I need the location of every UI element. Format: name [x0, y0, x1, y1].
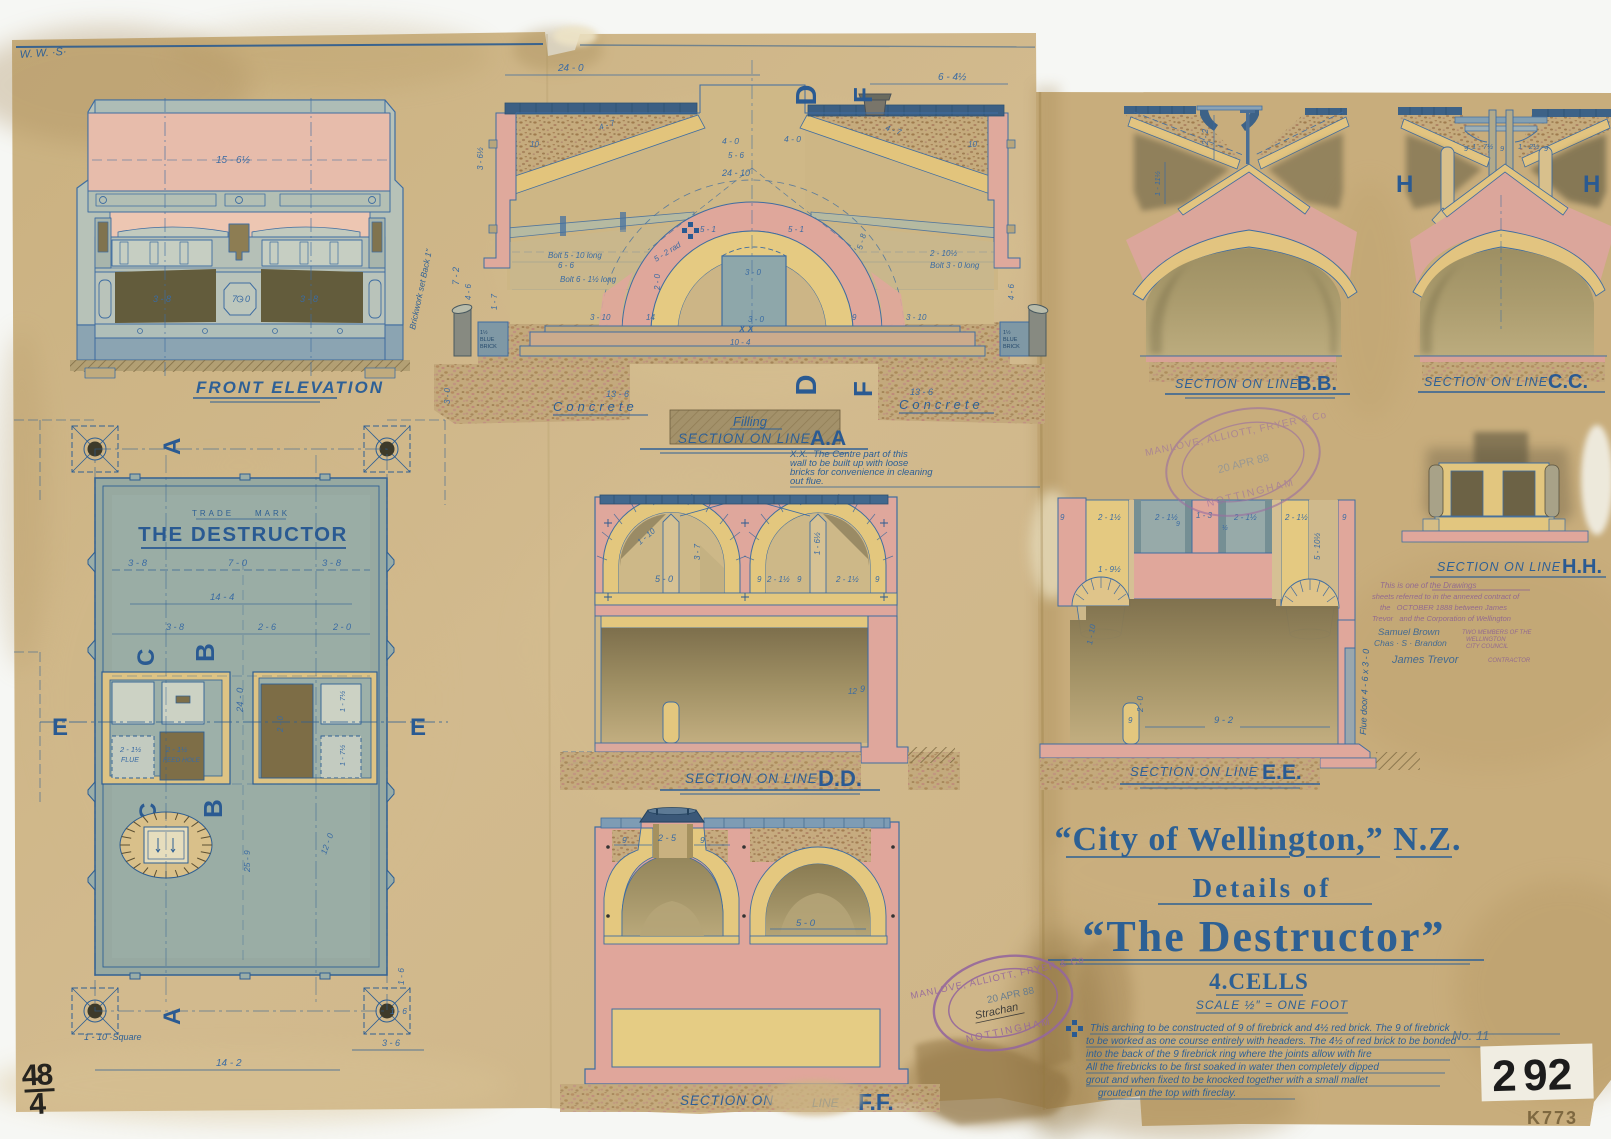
- svg-text:9: 9: [757, 575, 762, 584]
- svg-text:1½: 1½: [1003, 329, 1011, 336]
- svg-text:SECTION ON LINE: SECTION ON LINE: [1437, 560, 1561, 574]
- svg-text:1 - 2½: 1 - 2½: [1518, 142, 1540, 151]
- svg-text:CITY COUNCIL: CITY COUNCIL: [1466, 644, 1508, 650]
- svg-text:2 - 2: 2 - 2: [1201, 128, 1210, 146]
- svg-text:“The Destructor”: “The Destructor”: [1082, 912, 1445, 961]
- svg-text:4 - 0: 4 - 0: [784, 134, 801, 144]
- svg-text:H: H: [1396, 171, 1413, 198]
- svg-text:Bolt 5 - 10 long: Bolt 5 - 10 long: [548, 251, 602, 260]
- svg-text:9: 9: [622, 835, 627, 845]
- svg-text:H: H: [1583, 171, 1600, 198]
- svg-text:5 - 1: 5 - 1: [788, 225, 804, 234]
- svg-text:TRADE MARK: TRADE MARK: [192, 509, 290, 518]
- svg-text:9: 9: [1176, 521, 1180, 528]
- svg-text:4 - 6: 4 - 6: [464, 283, 473, 300]
- svg-text:9 - 2: 9 - 2: [1214, 715, 1234, 726]
- svg-text:grout and when fixed to be kno: grout and when fixed to be knocked toget…: [1086, 1075, 1369, 1086]
- svg-text:2 - 0: 2 - 0: [1136, 695, 1145, 713]
- svg-text:2 - 1½: 2 - 1½: [766, 575, 790, 584]
- svg-text:Samuel Brown: Samuel Brown: [1378, 627, 1440, 638]
- svg-text:BLUE: BLUE: [480, 337, 495, 343]
- svg-text:1 - 6½: 1 - 6½: [813, 532, 822, 555]
- svg-text:2: 2: [1491, 1052, 1517, 1102]
- svg-text:3 - 8: 3 - 8: [153, 294, 171, 304]
- svg-text:3 - 6½: 3 - 6½: [476, 147, 485, 170]
- svg-text:Chas · S · Brandon: Chas · S · Brandon: [1374, 638, 1447, 648]
- svg-text:H.H.: H.H.: [1562, 556, 1602, 578]
- svg-text:10: 10: [968, 140, 977, 149]
- svg-text:12: 12: [848, 687, 857, 696]
- svg-text:9: 9: [852, 313, 857, 322]
- svg-text:10 - 4: 10 - 4: [730, 338, 751, 347]
- svg-text:1 - 7½: 1 - 7½: [1472, 142, 1494, 151]
- svg-text:3 - 8: 3 - 8: [300, 294, 318, 304]
- svg-text:BLUE: BLUE: [1003, 337, 1018, 343]
- svg-text:SECTION ON LINE: SECTION ON LINE: [1130, 764, 1258, 779]
- svg-text:Details of: Details of: [1193, 873, 1332, 903]
- svg-text:2 - 1½: 2 - 1½: [1154, 513, 1178, 522]
- svg-text:sheets referred to in the anne: sheets referred to in the annexed contra…: [1372, 592, 1520, 601]
- svg-text:1 - 9½: 1 - 9½: [1098, 565, 1121, 574]
- svg-text:Concrete: Concrete: [899, 397, 984, 412]
- svg-text:6 - 6: 6 - 6: [558, 261, 575, 270]
- svg-text:SECTION ON LINE: SECTION ON LINE: [685, 771, 818, 786]
- svg-text:2 - 0: 2 - 0: [276, 715, 285, 733]
- svg-text:1 - 11½: 1 - 11½: [1153, 170, 1162, 196]
- svg-text:2 - 1½: 2 - 1½: [119, 745, 142, 754]
- svg-text:grouted on the top with firecl: grouted on the top with fireclay.: [1098, 1088, 1236, 1099]
- svg-text:13 - 6: 13 - 6: [910, 387, 933, 397]
- svg-text:2 - 5: 2 - 5: [657, 833, 677, 843]
- svg-text:3 - 0: 3 - 0: [745, 268, 762, 277]
- svg-text:1 - 7½: 1 - 7½: [338, 690, 347, 712]
- svg-text:9: 9: [875, 575, 880, 584]
- svg-text:7 - 2: 7 - 2: [451, 267, 461, 285]
- svg-text:B.B.: B.B.: [1297, 373, 1337, 395]
- svg-text:Bolt 6 - 1½ long: Bolt 6 - 1½ long: [560, 275, 617, 284]
- svg-text:SECTION ON LINE: SECTION ON LINE: [678, 431, 811, 446]
- svg-text:CONTRACTOR: CONTRACTOR: [1488, 658, 1531, 664]
- svg-text:4: 4: [28, 1088, 47, 1122]
- svg-text:FRONT ELEVATION: FRONT ELEVATION: [196, 378, 384, 397]
- svg-text:FEED HOLE: FEED HOLE: [163, 757, 201, 764]
- svg-text:SECTION ON LINE: SECTION ON LINE: [1175, 377, 1299, 391]
- svg-text:F: F: [848, 87, 878, 103]
- svg-text:3 - 6: 3 - 6: [382, 1038, 400, 1048]
- svg-text:3 - 10: 3 - 10: [590, 313, 611, 322]
- svg-text:5 - 1: 5 - 1: [700, 225, 716, 234]
- svg-text:½: ½: [1222, 524, 1228, 532]
- svg-text:All the firebricks to be first: All the firebricks to be first soaked in…: [1085, 1062, 1379, 1073]
- svg-text:D: D: [791, 85, 823, 106]
- svg-text:5 - 0: 5 - 0: [796, 918, 816, 929]
- svg-text:1 - 10 ·Square: 1 - 10 ·Square: [84, 1032, 142, 1042]
- svg-text:2 - 1½: 2 - 1½: [1284, 513, 1308, 522]
- svg-text:4 - 6: 4 - 6: [1007, 283, 1016, 300]
- svg-text:2 - 1½: 2 - 1½: [835, 575, 859, 584]
- svg-text:out flue.: out flue.: [790, 476, 824, 487]
- svg-text:24 - 0: 24 - 0: [235, 687, 246, 713]
- svg-text:5 - 6: 5 - 6: [728, 151, 745, 160]
- svg-text:6 - 4½: 6 - 4½: [938, 72, 967, 83]
- svg-text:Filling: Filling: [733, 414, 768, 429]
- svg-text:4 - 0: 4 - 0: [722, 136, 739, 146]
- svg-text:24 - 0: 24 - 0: [557, 63, 584, 74]
- svg-text:BRICK: BRICK: [1003, 344, 1020, 350]
- svg-text:Bolt 3 - 0 long: Bolt 3 - 0 long: [930, 261, 980, 270]
- svg-text:9: 9: [797, 575, 802, 584]
- svg-text:to be worked as one course ent: to be worked as one course entirely with…: [1086, 1036, 1457, 1047]
- svg-text:92: 92: [1522, 1050, 1572, 1100]
- svg-text:3 - 0: 3 - 0: [443, 387, 452, 404]
- svg-text:14 - 4: 14 - 4: [210, 592, 234, 603]
- svg-text:2 - 0: 2 - 0: [332, 622, 351, 632]
- svg-text:3 - 7: 3 - 7: [693, 543, 702, 560]
- svg-text:Concrete: Concrete: [553, 399, 638, 414]
- svg-text:E.E.: E.E.: [1262, 761, 1302, 784]
- svg-text:1 - 6: 1 - 6: [390, 1006, 407, 1016]
- svg-text:K773: K773: [1527, 1108, 1578, 1128]
- svg-text:This is one of the Drawings: This is one of the Drawings: [1380, 581, 1477, 590]
- svg-text:3 - 8: 3 - 8: [128, 558, 148, 569]
- svg-text:B: B: [198, 799, 228, 818]
- svg-text:14 - 2: 14 - 2: [216, 1058, 242, 1069]
- svg-text:4.CELLS: 4.CELLS: [1209, 969, 1309, 994]
- svg-text:3 - 8: 3 - 8: [166, 622, 184, 632]
- svg-text:1½: 1½: [480, 329, 488, 336]
- svg-text:A.A: A.A: [810, 427, 846, 450]
- svg-text:3 - 0: 3 - 0: [748, 315, 765, 324]
- svg-text:1 - 6: 1 - 6: [396, 968, 406, 985]
- svg-text:3 - 8: 3 - 8: [322, 558, 342, 569]
- svg-text:C.C.: C.C.: [1548, 371, 1588, 393]
- svg-text:A: A: [159, 1008, 186, 1025]
- svg-text:This arching to be constructed: This arching to be constructed of 9 of f…: [1090, 1023, 1451, 1034]
- svg-text:BRICK: BRICK: [480, 344, 497, 350]
- svg-text:14: 14: [646, 313, 655, 322]
- svg-text:D.D.: D.D.: [818, 766, 862, 791]
- svg-text:25 - 9: 25 - 9: [242, 850, 252, 873]
- svg-text:F.F.: F.F.: [858, 1089, 894, 1115]
- svg-text:9: 9: [1060, 513, 1065, 522]
- svg-text:C: C: [133, 649, 160, 666]
- svg-text:9: 9: [1128, 716, 1133, 725]
- svg-text:24 - 10: 24 - 10: [721, 168, 750, 178]
- svg-text:the OCTOBER 1888 between Jam: the OCTOBER 1888 between James: [1380, 603, 1507, 612]
- svg-text:B: B: [190, 643, 220, 662]
- svg-text:1 - 7: 1 - 7: [490, 293, 499, 310]
- svg-text:A: A: [159, 438, 186, 455]
- svg-text:2 - 10½: 2 - 10½: [929, 249, 957, 258]
- svg-text:FLUE: FLUE: [121, 757, 139, 764]
- svg-text:SECTION ON LINE: SECTION ON LINE: [1424, 375, 1548, 389]
- svg-text:10: 10: [530, 140, 539, 149]
- svg-text:7 - 0: 7 - 0: [228, 558, 248, 569]
- svg-text:5 - 10½: 5 - 10½: [1313, 533, 1322, 560]
- svg-text:Trevor and the Corporation o: Trevor and the Corporation of Wellington: [1372, 614, 1511, 623]
- svg-text:13 - 6: 13 - 6: [606, 389, 629, 399]
- svg-text:SCALE ½″ = ONE FOOT: SCALE ½″ = ONE FOOT: [1196, 998, 1349, 1012]
- svg-text:5 - 0: 5 - 0: [655, 574, 673, 584]
- svg-text:2 - 1½: 2 - 1½: [1097, 513, 1121, 522]
- svg-text:D: D: [791, 375, 823, 396]
- svg-text:9: 9: [860, 684, 865, 694]
- svg-text:2 - 1½: 2 - 1½: [165, 745, 188, 754]
- svg-text:3 - 10: 3 - 10: [906, 313, 927, 322]
- svg-text:15 - 6½: 15 - 6½: [216, 155, 251, 166]
- svg-text:7 - 0: 7 - 0: [232, 294, 250, 304]
- svg-text:WELLINGTON: WELLINGTON: [1466, 637, 1506, 643]
- svg-text:E: E: [410, 714, 426, 741]
- svg-text:E: E: [52, 714, 68, 741]
- svg-text:No. 11: No. 11: [1452, 1028, 1489, 1043]
- svg-text:SECTION ON: SECTION ON: [680, 1093, 774, 1108]
- svg-text:2 - 0: 2 - 0: [653, 273, 662, 291]
- svg-text:TWO MEMBERS OF THE: TWO MEMBERS OF THE: [1462, 630, 1533, 636]
- svg-text:9: 9: [1342, 513, 1347, 522]
- svg-text:F: F: [848, 381, 878, 397]
- svg-text:“City of Wellington,” N.Z.: “City of Wellington,” N.Z.: [1055, 821, 1462, 858]
- svg-text:1 - 7½: 1 - 7½: [338, 744, 347, 766]
- svg-text:2 - 6: 2 - 6: [257, 622, 276, 632]
- svg-text:into the back of the 9 firebri: into the back of the 9 firebrick ring wh…: [1086, 1049, 1372, 1060]
- svg-text:James Trevor: James Trevor: [1391, 654, 1460, 666]
- svg-text:9: 9: [700, 835, 705, 845]
